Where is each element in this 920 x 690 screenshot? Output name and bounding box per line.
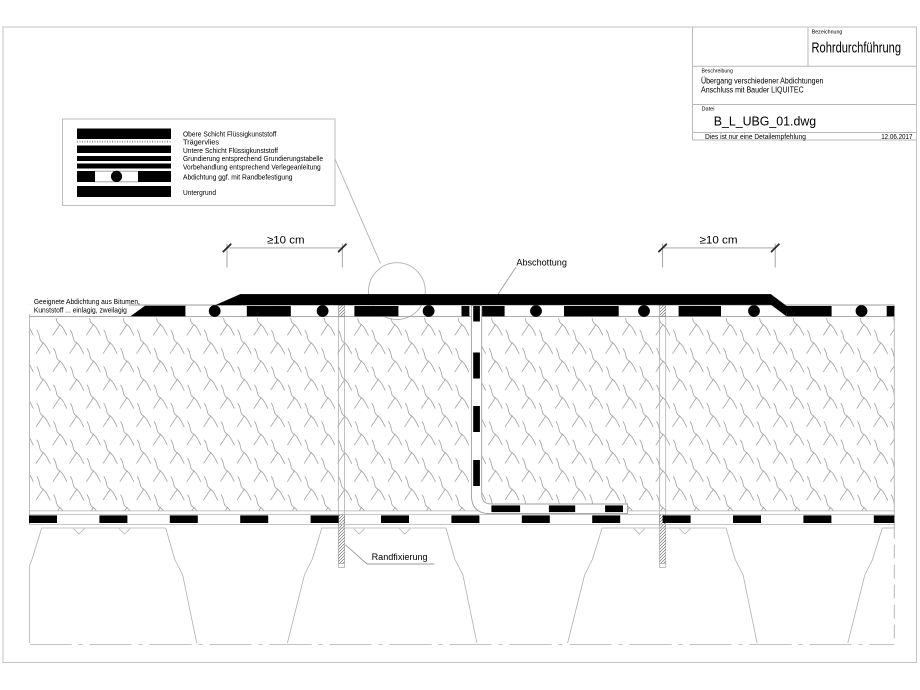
svg-text:12.06.2017: 12.06.2017 — [881, 134, 912, 141]
svg-text:Abschottung: Abschottung — [516, 257, 567, 268]
svg-text:Kunststoff ... einlagig, zweil: Kunststoff ... einlagig, zweilagig — [34, 305, 127, 314]
svg-text:≥10 cm: ≥10 cm — [700, 235, 738, 247]
svg-text:Datei: Datei — [702, 107, 715, 113]
svg-text:Randfixierung: Randfixierung — [372, 552, 428, 562]
svg-text:Rohrdurchführung: Rohrdurchführung — [812, 41, 902, 57]
svg-text:Vorbehandlung entsprechend Ver: Vorbehandlung entsprechend Verlegeanleit… — [183, 163, 321, 172]
svg-text:Beschreibung: Beschreibung — [702, 68, 734, 74]
svg-text:Anschluss mit Bauder LIQUITEC: Anschluss mit Bauder LIQUITEC — [701, 85, 804, 94]
svg-text:B_L_UBG_01.dwg: B_L_UBG_01.dwg — [714, 115, 817, 129]
svg-text:Bezeichnung: Bezeichnung — [812, 29, 843, 35]
svg-text:Abdichtung ggf. mit Randbefest: Abdichtung ggf. mit Randbefestigung — [183, 172, 293, 181]
svg-text:Übergang verschiedener Abdicht: Übergang verschiedener Abdichtungen — [701, 77, 824, 86]
svg-text:Untergrund: Untergrund — [183, 188, 216, 197]
svg-text:≥10 cm: ≥10 cm — [267, 235, 305, 247]
svg-text:Dies ist nur eine Detailempfeh: Dies ist nur eine Detailempfehlung — [705, 134, 806, 141]
